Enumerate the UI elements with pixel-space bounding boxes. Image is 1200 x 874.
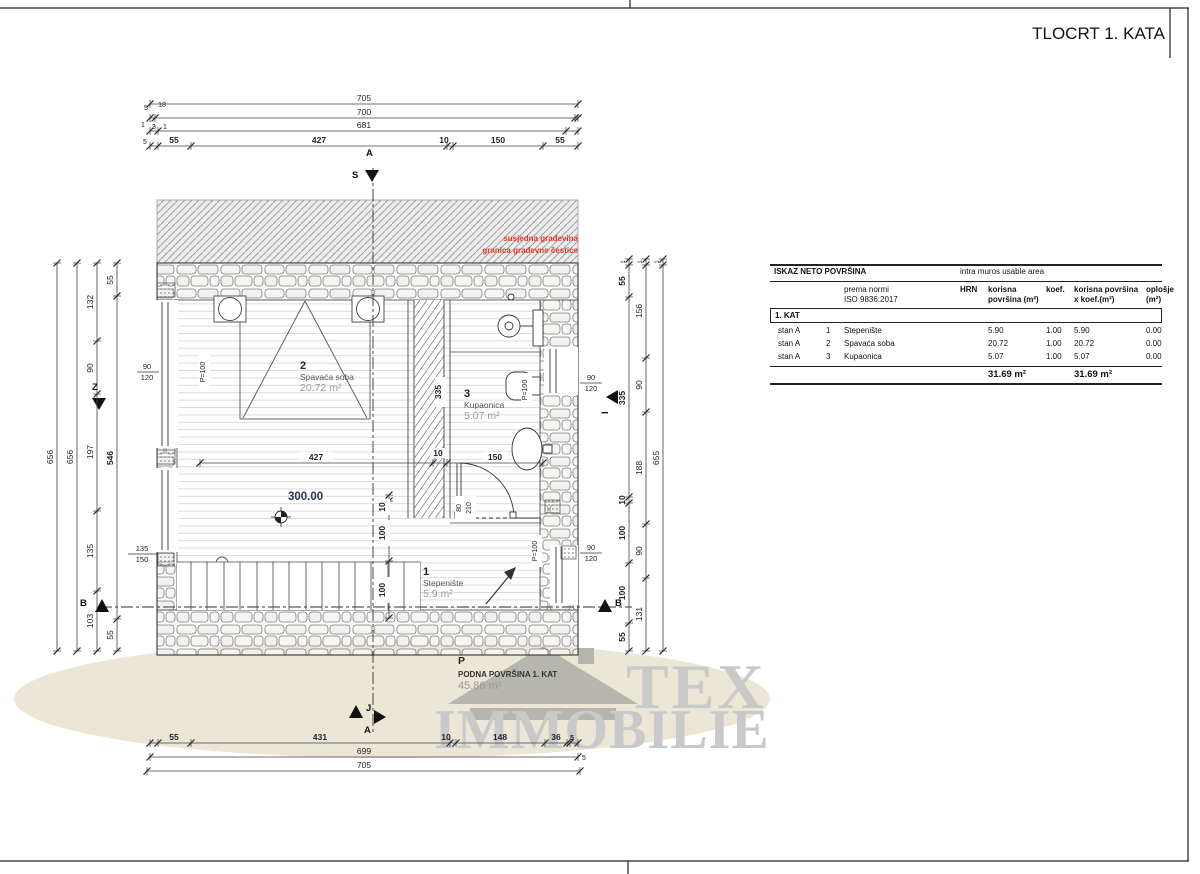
section-b-right-arrow-icon: [598, 599, 612, 612]
dim-label: 90: [587, 543, 595, 552]
sink-icon: [512, 428, 542, 470]
neighbour-band: [157, 200, 578, 263]
dim-label: 55: [169, 135, 179, 145]
dim-label: 36: [551, 732, 561, 742]
dim-label: 10: [433, 448, 443, 458]
dim-label: 656: [45, 450, 55, 464]
dim-label: 150: [491, 135, 505, 145]
dim-label: 681: [357, 120, 371, 130]
cell-area: 5.90: [988, 326, 1004, 335]
dim-label: 705: [357, 760, 371, 770]
dim-label: 1: [621, 260, 627, 264]
header-norm-2: ISO 9836:2017: [844, 295, 898, 304]
floor-plan-drawing: 7057006815542710150555181315554311014836…: [0, 0, 1200, 874]
dim-label: 5: [143, 139, 147, 146]
cell-oplosje: 0.00: [1146, 326, 1162, 335]
dim-label: 100: [377, 526, 387, 540]
dim-label: 90: [143, 362, 151, 371]
dim-label: 103: [85, 614, 95, 628]
dim-label: 656: [65, 450, 75, 464]
dim-label: P=100: [522, 380, 529, 401]
south-arrow-icon: [349, 705, 363, 718]
cell-area: 20.72: [988, 339, 1008, 348]
dim-label: 5: [144, 105, 148, 112]
partition-wall: [408, 300, 450, 518]
dim-label: 10: [439, 135, 449, 145]
dim-label: 100: [617, 526, 627, 540]
dim-label: 135: [136, 544, 149, 553]
cell-oplosje: 0.00: [1146, 339, 1162, 348]
dim-label: 335: [617, 391, 627, 405]
dim-label: 100: [617, 586, 627, 600]
dim-label: 156: [634, 304, 644, 318]
dim-label: 10: [617, 495, 627, 505]
dim-label: 10: [441, 732, 451, 742]
dim-label: 188: [634, 461, 644, 475]
dim-label: 132: [85, 295, 95, 309]
dim-label: 5: [582, 755, 586, 762]
dim-label: 148: [493, 732, 507, 742]
header-oplosje: oplošje: [1146, 285, 1174, 294]
header-hrn: HRN: [960, 285, 977, 294]
drawing-sheet: TEX IMMOBILIE: [0, 0, 1200, 874]
dim-label: 427: [309, 452, 323, 462]
dim-label: 120: [585, 554, 598, 563]
table-title: ISKAZ NETO POVRŠINA: [774, 267, 866, 276]
dim-label: 1: [163, 124, 167, 131]
dim-label: 546: [105, 451, 115, 465]
dim-label: 131: [634, 607, 644, 621]
cell-name: Kupaonica: [844, 352, 882, 361]
dim-label: 18: [158, 102, 166, 109]
dim-label: 3: [152, 124, 156, 131]
table-section-row: 1. KAT: [770, 308, 1162, 323]
header-area-2: površina (m²): [988, 295, 1039, 304]
dim-label: 427: [312, 135, 326, 145]
cell-koef: 1.00: [1046, 339, 1062, 348]
dim-label: 335: [433, 385, 443, 399]
dim-label: 150: [136, 555, 149, 564]
cell-unit: stan A: [778, 339, 800, 348]
total-area: 31.69 m²: [988, 369, 1026, 380]
dim-label: 55: [169, 732, 179, 742]
dim-label: P=100: [200, 362, 207, 383]
dim-label: 1: [655, 260, 661, 264]
dim-label: 120: [585, 384, 598, 393]
dim-label: 90: [634, 546, 644, 556]
dim-label: 55: [617, 632, 627, 642]
cell-num: 3: [826, 352, 830, 361]
header-areakoef: korisna površina: [1074, 285, 1138, 294]
dim-label: 135: [85, 544, 95, 558]
dim-label: 100: [377, 583, 387, 597]
north-arrow-icon: [365, 170, 379, 182]
dim-label: 150: [488, 452, 502, 462]
dim-label: 197: [85, 445, 95, 459]
dim-label: 80: [456, 504, 463, 512]
dim-label: 655: [651, 451, 661, 465]
net-area-table: ISKAZ NETO POVRŠINA intra muros usable a…: [770, 264, 1162, 386]
cell-area: 5.07: [988, 352, 1004, 361]
dim-label: P=100: [532, 541, 539, 562]
west-arrow-icon: [92, 398, 106, 410]
table-title-en: intra muros usable area: [960, 267, 1044, 276]
dim-label: 90: [634, 380, 644, 390]
header-norm: prema normi: [844, 285, 889, 294]
dim-label: 10: [377, 502, 387, 512]
cell-oplosje: 0.00: [1146, 352, 1162, 361]
cell-koef: 1.00: [1046, 352, 1062, 361]
cell-areakoef: 5.90: [1074, 326, 1090, 335]
dim-label: 90: [85, 363, 95, 373]
dim-label: 55: [617, 276, 627, 286]
dim-label: 705: [357, 93, 371, 103]
dim-label: 5: [570, 735, 574, 742]
header-oplosje-2: (m²): [1146, 295, 1161, 304]
header-area: korisna: [988, 285, 1016, 294]
dim-label: 699: [357, 746, 371, 756]
section-a-arrow-icon: [374, 710, 386, 724]
total-areakoef: 31.69 m²: [1074, 369, 1112, 380]
dim-label: 431: [313, 732, 327, 742]
dim-label: 55: [105, 275, 115, 285]
cell-name: Stepenište: [844, 326, 882, 335]
cell-unit: stan A: [778, 352, 800, 361]
dim-label: 700: [357, 107, 371, 117]
cell-areakoef: 5.07: [1074, 352, 1090, 361]
shower-icon: [505, 322, 513, 330]
cell-name: Spavaća soba: [844, 339, 895, 348]
cell-unit: stan A: [778, 326, 800, 335]
dim-label: 90: [587, 373, 595, 382]
cell-num: 2: [826, 339, 830, 348]
dim-label: 1: [638, 260, 644, 264]
dim-label: 120: [141, 373, 154, 382]
cell-koef: 1.00: [1046, 326, 1062, 335]
dim-label: 1: [141, 122, 145, 129]
header-areakoef-2: x koef.(m²): [1074, 295, 1114, 304]
section-label: 1. KAT: [775, 311, 800, 320]
header-koef: koef.: [1046, 285, 1065, 294]
dim-label: 55: [105, 630, 115, 640]
dim-label: 210: [466, 502, 473, 514]
cell-num: 1: [826, 326, 830, 335]
cell-areakoef: 20.72: [1074, 339, 1094, 348]
dim-label: 55: [555, 135, 565, 145]
